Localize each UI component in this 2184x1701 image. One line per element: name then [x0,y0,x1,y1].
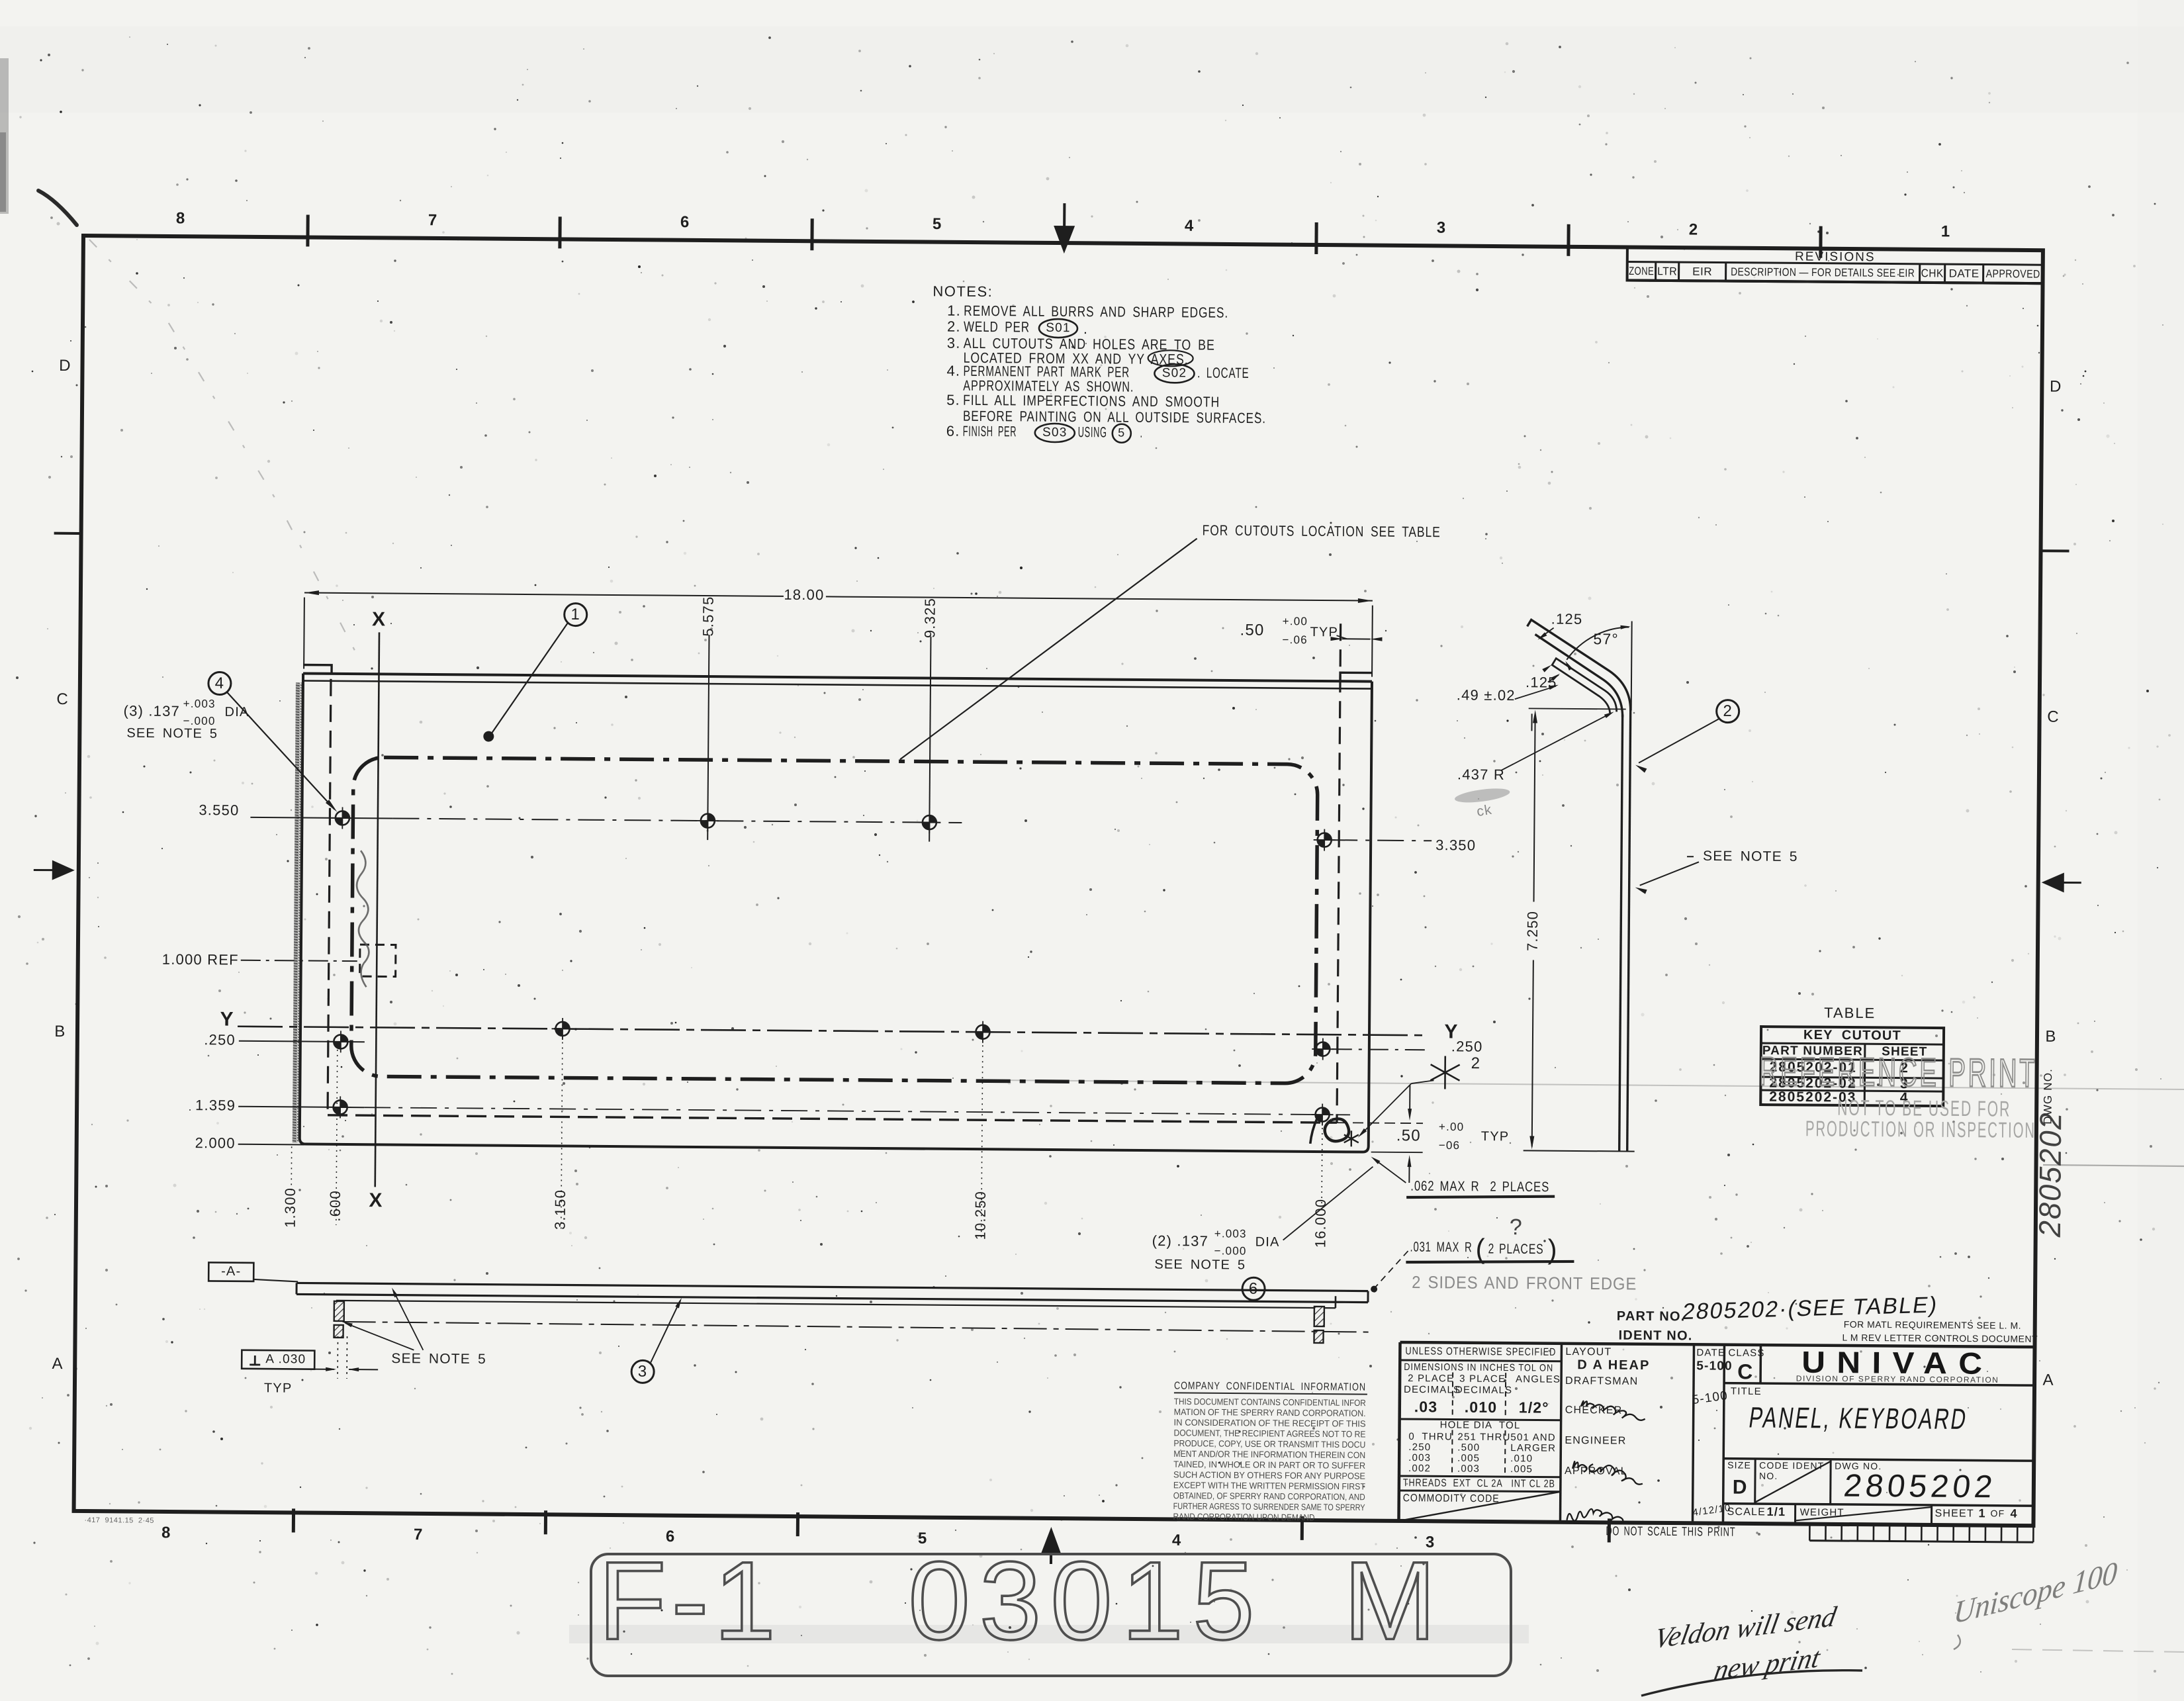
svg-text:6: 6 [1249,1280,1259,1298]
svg-text:1: 1 [1941,222,1951,240]
svg-text:.03: .03 [1414,1398,1438,1415]
svg-text:TAINED, IN WHOLE OR IN PART OR: TAINED, IN WHOLE OR IN PART OR TO SUFFER [1173,1459,1365,1471]
svg-text:ck: ck [1475,802,1493,820]
svg-text:PRODUCE, COPY, USE OR TRANSMIT: PRODUCE, COPY, USE OR TRANSMIT THIS DOCU [1173,1438,1365,1449]
svg-text:TYP: TYP [1481,1129,1510,1144]
svg-text:8: 8 [161,1524,171,1541]
svg-text:Y: Y [220,1008,234,1030]
svg-text:DIVISION OF SPERRY RAND CORPOR: DIVISION OF SPERRY RAND CORPORATION [1796,1374,1999,1385]
svg-text:REVISIONS: REVISIONS [1795,250,1876,264]
svg-text:·417 9141.15 2·45: ·417 9141.15 2·45 [84,1516,154,1525]
svg-text:.50: .50 [1396,1126,1421,1144]
svg-text:2: 2 [1689,221,1699,239]
svg-text:(: ( [1475,1233,1486,1264]
svg-text:DATE: DATE [1949,267,1979,280]
svg-text:1.359: 1.359 [195,1097,236,1113]
svg-text:1: 1 [1979,1506,1986,1520]
svg-text:S02: S02 [1162,366,1187,380]
svg-text:FOR CUTOUTS LOCATION SEE TABLE: FOR CUTOUTS LOCATION SEE TABLE [1203,522,1441,540]
svg-text:7: 7 [414,1526,424,1543]
svg-text:.003: .003 [1457,1463,1480,1475]
svg-text:−06: −06 [1439,1139,1461,1152]
svg-text:DECIMALS: DECIMALS [1404,1384,1461,1396]
svg-text:EXCEPT WITH THE WRITTEN PERMIS: EXCEPT WITH THE WRITTEN PERMISSION FIRST [1173,1480,1365,1491]
svg-text:THREADS EXT CL 2A INT CL 2: THREADS EXT CL 2A INT CL 2B [1403,1477,1555,1490]
svg-text:.010: .010 [1465,1399,1498,1416]
svg-text:3 PLACE: 3 PLACE [1459,1373,1506,1385]
svg-text:S01: S01 [1046,321,1071,335]
svg-text:−.000: −.000 [1214,1244,1246,1257]
svg-text:ENGINEER: ENGINEER [1565,1435,1626,1447]
svg-text:1.: 1. [947,302,961,319]
svg-text:APPROVAL: APPROVAL [1565,1465,1627,1477]
svg-text:COMPANY CONFIDENTIAL INFORMA: COMPANY CONFIDENTIAL INFORMATION [1174,1381,1366,1393]
svg-text:IN CONSIDERATION OF THE RECEIP: IN CONSIDERATION OF THE RECEIPT OF THIS [1174,1418,1366,1429]
svg-text:3.: 3. [947,335,961,351]
svg-text:PRODUCTION OR INSPECTION: PRODUCTION OR INSPECTION [1805,1116,2036,1142]
svg-text:TABLE: TABLE [1824,1005,1876,1022]
svg-text:M: M [1343,1538,1436,1663]
svg-text:COMMODITY CODE: COMMODITY CODE [1403,1493,1500,1504]
svg-text:B: B [54,1023,66,1040]
svg-text:6.: 6. [946,423,960,439]
svg-text:3.550: 3.550 [199,802,239,818]
svg-text:.250: .250 [204,1031,236,1048]
svg-text:6: 6 [680,213,690,231]
svg-text:4.: 4. [946,363,960,379]
svg-text:.031 MAX R: .031 MAX R [1410,1240,1473,1256]
svg-text:.: . [1083,320,1089,337]
svg-text:-A-: -A- [221,1264,241,1279]
svg-text:.003: .003 [1408,1452,1431,1463]
svg-text:2: 2 [1723,702,1733,720]
svg-text:EIR: EIR [1692,265,1712,278]
svg-text:+.00: +.00 [1439,1121,1465,1133]
svg-text:MENT AND/OR THE INFORMATION TH: MENT AND/OR THE INFORMATION THEREIN CON [1173,1449,1365,1460]
svg-text:18.00: 18.00 [784,586,824,603]
svg-text:C: C [1737,1359,1754,1383]
svg-text:IDENT NO.: IDENT NO. [1619,1328,1693,1344]
svg-text:SEE NOTE 5: SEE NOTE 5 [126,726,218,741]
svg-text:1: 1 [570,606,580,623]
svg-text:+.00: +.00 [1283,615,1308,627]
svg-text:ANGLES: ANGLES [1516,1373,1561,1385]
svg-text:.010: .010 [1510,1453,1533,1464]
svg-text:DIA: DIA [1255,1235,1280,1250]
svg-text:NO.: NO. [1759,1471,1778,1481]
svg-text:.437 R: .437 R [1457,766,1505,783]
svg-text:(2) .137: (2) .137 [1152,1232,1209,1250]
svg-text:.500: .500 [1457,1442,1480,1453]
svg-text:A: A [52,1355,63,1373]
svg-text:.062 MAX R 2 PLACES: .062 MAX R 2 PLACES [1410,1179,1549,1195]
svg-text:FURTHER AGRESS TO SURRENDER SA: FURTHER AGRESS TO SURRENDER SAME TO SPER… [1173,1501,1365,1512]
svg-text:501 AND: 501 AND [1510,1432,1556,1444]
svg-text:): ) [1547,1234,1558,1265]
svg-text:2: 2 [1471,1054,1481,1072]
svg-text:2.: 2. [947,318,961,335]
svg-text:THIS DOCUMENT CONTAINS CONFIDE: THIS DOCUMENT CONTAINS CONFIDENTIAL INFO… [1174,1397,1366,1408]
svg-text:.250: .250 [1408,1442,1431,1453]
svg-text:C: C [2047,708,2060,726]
svg-text:2 PLACE: 2 PLACE [1408,1373,1454,1385]
svg-text:03015: 03015 [908,1538,1263,1663]
svg-text:DECIMALS: DECIMALS [1455,1385,1512,1397]
svg-text:7.250: 7.250 [1524,911,1541,951]
svg-text:DOCUMENT, THE RECIPIENT AGREES: DOCUMENT, THE RECIPIENT AGREES NOT TO RE [1173,1428,1365,1439]
svg-text:.005: .005 [1510,1463,1533,1475]
svg-text:CHK: CHK [1921,267,1944,279]
svg-text:X: X [369,1189,383,1211]
svg-text:A .030: A .030 [265,1352,306,1366]
svg-text:1/1: 1/1 [1767,1505,1786,1518]
svg-text:4: 4 [2011,1507,2018,1520]
svg-text:5-100: 5-100 [1696,1359,1733,1373]
svg-text:LARGER: LARGER [1510,1442,1556,1454]
svg-text:3.350: 3.350 [1435,837,1476,853]
svg-text:(3) .137: (3) .137 [124,702,181,719]
svg-text:APPROVED: APPROVED [1986,267,2040,281]
svg-text:1/2°: 1/2° [1519,1399,1549,1416]
svg-text:.250: .250 [1451,1038,1483,1054]
svg-text:OBTAINED, OF SPERRY RAND CORPO: OBTAINED, OF SPERRY RAND CORPORATION, AN… [1173,1491,1365,1502]
svg-text:.005: .005 [1457,1453,1480,1464]
svg-text:D: D [59,357,71,375]
svg-text:FOR MATL REQUIREMENTS SEE L. M: FOR MATL REQUIREMENTS SEE L. M. [1844,1319,2021,1331]
svg-text:DIMENSIONS IN INCHES TOL ON: DIMENSIONS IN INCHES TOL ON [1404,1361,1553,1374]
svg-text:+.003: +.003 [1214,1227,1247,1240]
svg-text:DIA: DIA [225,705,250,719]
svg-text:9.325: 9.325 [921,598,938,638]
svg-text:16.000: 16.000 [1312,1199,1329,1248]
svg-text:3: 3 [1437,219,1447,237]
svg-text:SIZE: SIZE [1727,1459,1751,1470]
svg-text:CHECKER: CHECKER [1565,1404,1623,1416]
svg-text:SCALE: SCALE [1727,1506,1766,1518]
svg-text:MATION OF THE SPERRY RAND CORP: MATION OF THE SPERRY RAND CORPORATION. [1174,1407,1366,1418]
svg-text:TITLE: TITLE [1731,1386,1762,1397]
svg-text:2.000: 2.000 [195,1134,236,1151]
svg-text:LTR: LTR [1657,265,1677,277]
svg-text:WEIGHT: WEIGHT [1800,1506,1844,1518]
svg-text:0 THRU: 0 THRU [1408,1431,1453,1442]
svg-text:5.575: 5.575 [700,596,716,636]
svg-text:REFERENCE PRINT: REFERENCE PRINT [1759,1049,2037,1095]
svg-text:PANEL, KEYBOARD: PANEL, KEYBOARD [1747,1402,1970,1436]
svg-text:B: B [2045,1028,2056,1046]
svg-text:SEE NOTE 5: SEE NOTE 5 [1703,849,1798,864]
svg-text:3: 3 [638,1363,648,1381]
svg-text:SEE NOTE 5: SEE NOTE 5 [1154,1257,1246,1272]
svg-text:RAND CORPORATION UPON DEMAND: RAND CORPORATION UPON DEMAND [1173,1512,1314,1523]
svg-text:10.250: 10.250 [972,1191,989,1240]
svg-text:C: C [56,690,69,708]
svg-text:D: D [1733,1477,1748,1498]
svg-text:DRAFTSMAN: DRAFTSMAN [1565,1375,1638,1387]
svg-text:TYP: TYP [264,1381,293,1395]
svg-text:SHEET: SHEET [1935,1508,1974,1519]
svg-text:2805202: 2805202 [1842,1468,1998,1505]
svg-text:DESCRIPTION — FOR DETAILS SEE: DESCRIPTION — FOR DETAILS SEE EIR [1731,265,1915,279]
svg-text:2 PLACES: 2 PLACES [1488,1241,1543,1257]
svg-text:SUCH ACTION BY OTHERS FOR ANY: SUCH ACTION BY OTHERS FOR ANY PURPOSE [1173,1470,1365,1481]
svg-text:F-1: F-1 [598,1538,781,1663]
svg-text:KEY CUTOUT: KEY CUTOUT [1803,1028,1901,1043]
svg-text:X: X [372,608,386,630]
svg-text:2 SIDES AND FRONT EDGE: 2 SIDES AND FRONT EDGE [1412,1272,1637,1294]
svg-text:−.06: −.06 [1282,633,1308,646]
svg-text:.50: .50 [1240,621,1264,639]
svg-text:8: 8 [176,209,186,227]
svg-text:WELD PER: WELD PER [964,318,1030,336]
svg-text:A: A [2042,1371,2054,1389]
svg-text:−.000: −.000 [183,715,215,727]
svg-text:+.003: +.003 [183,698,216,710]
svg-text:OF: OF [1991,1508,2005,1518]
svg-text:L M REV LETTER CONTROLS DOCUME: L M REV LETTER CONTROLS DOCUMENT [1843,1332,2038,1344]
svg-text:.125: .125 [1551,610,1583,627]
svg-text:UNLESS OTHERWISE SPECIFIED: UNLESS OTHERWISE SPECIFIED [1405,1346,1556,1358]
svg-text:S03: S03 [1042,426,1068,439]
svg-text:SEE NOTE 5: SEE NOTE 5 [391,1351,486,1367]
svg-text:.600: .600 [327,1190,343,1222]
svg-text:3.150: 3.150 [552,1189,569,1230]
svg-text:5: 5 [1118,426,1125,439]
svg-text:5.: 5. [946,392,960,408]
svg-text:CLASS: CLASS [1728,1348,1764,1359]
svg-text:?: ? [1510,1215,1523,1240]
svg-text:1.300: 1.300 [282,1187,298,1228]
svg-text:D A HEAP: D A HEAP [1577,1357,1650,1373]
svg-text:DO NOT SCALE THIS PRINT: DO NOT SCALE THIS PRINT [1606,1524,1735,1539]
svg-text:2805202: 2805202 [2032,1111,2068,1238]
svg-text:CODE IDENT: CODE IDENT [1759,1460,1824,1471]
svg-text:4: 4 [215,674,225,692]
svg-text:7: 7 [428,211,438,229]
svg-text:ZONE: ZONE [1629,265,1654,277]
svg-text:251 THRU: 251 THRU [1457,1432,1510,1444]
svg-text:D: D [2050,378,2062,396]
svg-text:4: 4 [1185,217,1195,235]
svg-text:57°: 57° [1593,630,1619,647]
svg-text:.49 ±.02: .49 ±.02 [1457,686,1516,704]
svg-text:5: 5 [933,215,942,233]
svg-text:LAYOUT: LAYOUT [1565,1346,1612,1358]
svg-text:.002: .002 [1408,1463,1431,1474]
svg-text:NOTES:: NOTES: [933,283,993,300]
svg-text:PART NO.: PART NO. [1617,1309,1686,1324]
svg-text:HOLE DIA TOL: HOLE DIA TOL [1440,1419,1521,1431]
svg-text:1.000 REF: 1.000 REF [162,951,239,968]
svg-text:DATE: DATE [1696,1347,1725,1358]
